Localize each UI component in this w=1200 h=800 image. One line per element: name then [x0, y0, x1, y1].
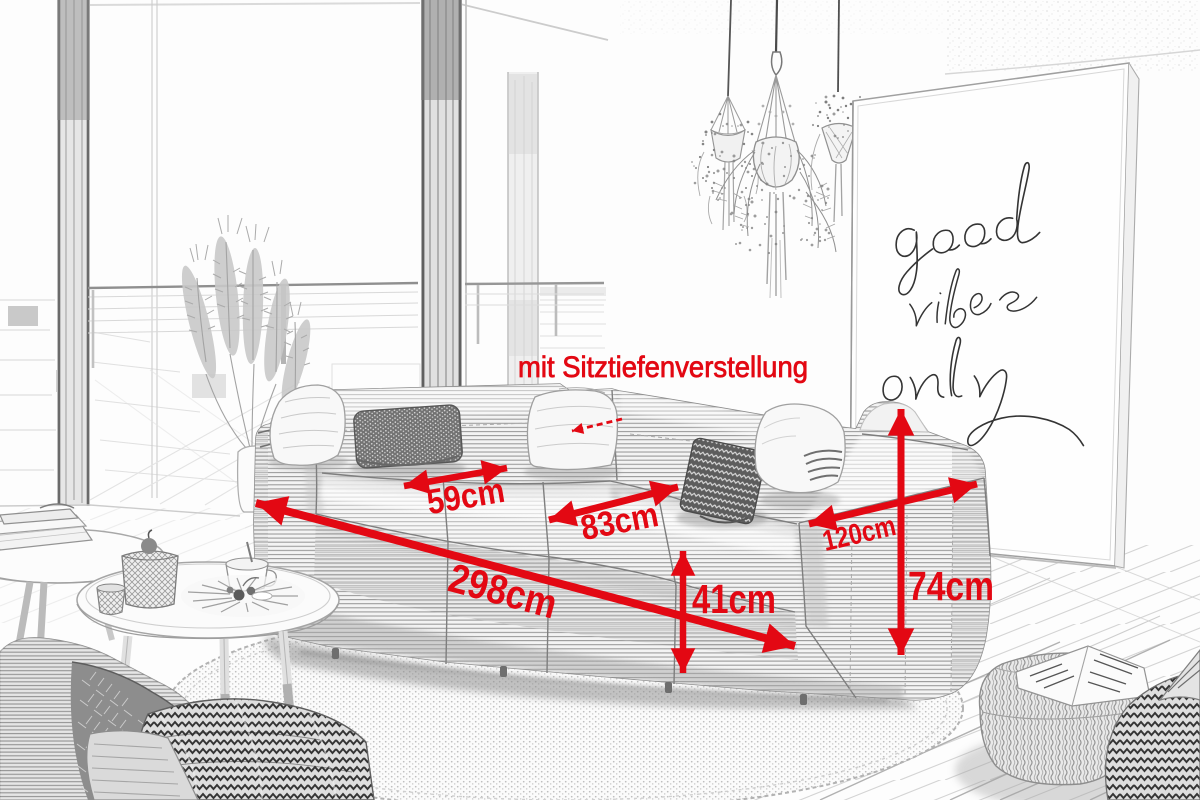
- svg-text:41cm: 41cm: [692, 576, 776, 622]
- svg-text:mit Sitztiefenverstellung: mit Sitztiefenverstellung: [518, 351, 808, 384]
- svg-text:74cm: 74cm: [908, 563, 994, 609]
